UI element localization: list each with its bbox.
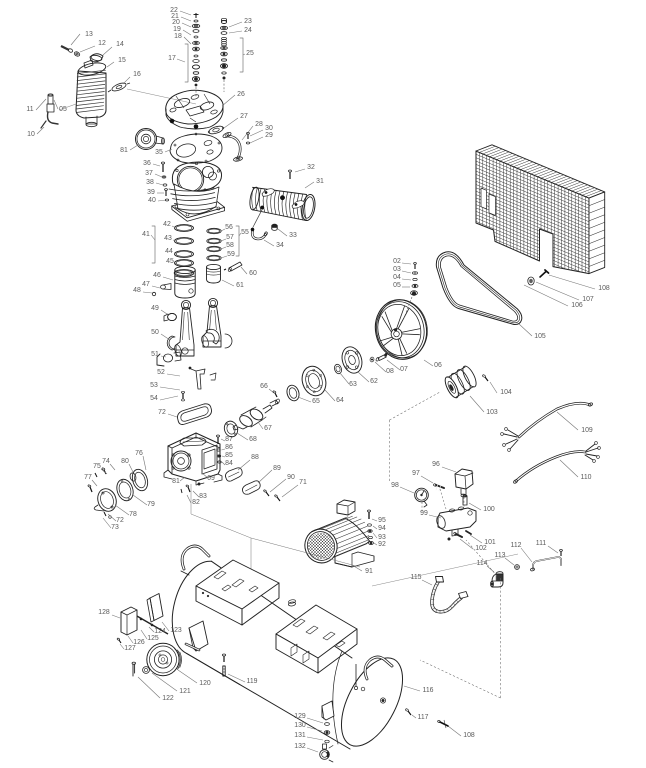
svg-text:132: 132 [294, 743, 306, 750]
svg-text:72: 72 [158, 409, 166, 416]
svg-text:123: 123 [170, 627, 182, 634]
svg-text:97: 97 [412, 470, 420, 477]
svg-text:73: 73 [111, 524, 119, 531]
svg-text:91: 91 [365, 568, 373, 575]
svg-text:127: 127 [124, 645, 136, 652]
svg-text:106: 106 [571, 302, 583, 309]
svg-text:99: 99 [420, 510, 428, 517]
svg-text:86: 86 [225, 444, 233, 451]
svg-text:124: 124 [154, 628, 166, 635]
svg-text:115: 115 [411, 574, 422, 581]
svg-text:119: 119 [247, 678, 258, 685]
svg-text:27: 27 [240, 113, 248, 120]
svg-text:72: 72 [116, 517, 124, 524]
svg-text:53: 53 [150, 382, 158, 389]
svg-text:68: 68 [249, 436, 257, 443]
svg-text:32: 32 [307, 164, 315, 171]
svg-text:55: 55 [241, 229, 249, 236]
svg-text:15: 15 [118, 57, 126, 64]
svg-text:60: 60 [249, 270, 257, 277]
svg-text:80: 80 [121, 458, 129, 465]
svg-text:29: 29 [265, 132, 273, 139]
svg-text:34: 34 [276, 242, 284, 249]
svg-text:81: 81 [120, 147, 128, 154]
svg-text:52: 52 [157, 369, 165, 376]
svg-text:71: 71 [299, 479, 307, 486]
svg-text:67: 67 [264, 425, 272, 432]
svg-text:56: 56 [225, 224, 233, 231]
svg-text:51: 51 [151, 351, 159, 358]
svg-text:31: 31 [316, 178, 324, 185]
svg-text:103: 103 [486, 409, 498, 416]
svg-text:24: 24 [244, 27, 252, 34]
svg-text:102: 102 [475, 545, 487, 552]
svg-text:61: 61 [236, 282, 244, 289]
svg-text:105: 105 [534, 333, 546, 340]
svg-text:16: 16 [133, 71, 141, 78]
svg-text:108: 108 [598, 285, 610, 292]
svg-text:89: 89 [273, 465, 281, 472]
svg-text:111: 111 [536, 540, 547, 547]
svg-text:78: 78 [129, 511, 137, 518]
svg-text:77: 77 [84, 474, 92, 481]
svg-text:81: 81 [172, 478, 180, 485]
svg-text:35: 35 [155, 149, 163, 156]
svg-text:48: 48 [133, 287, 141, 294]
svg-text:25: 25 [246, 50, 254, 57]
svg-text:42: 42 [163, 221, 171, 228]
svg-text:05: 05 [393, 282, 401, 289]
svg-text:74: 74 [102, 458, 110, 465]
svg-text:98: 98 [391, 482, 399, 489]
svg-text:75: 75 [93, 463, 101, 470]
svg-text:104: 104 [500, 389, 512, 396]
svg-text:131: 131 [294, 732, 306, 739]
svg-text:30: 30 [265, 125, 273, 132]
svg-text:03: 03 [393, 266, 401, 273]
svg-text:36: 36 [143, 160, 151, 167]
svg-text:10: 10 [27, 131, 35, 138]
svg-text:08: 08 [386, 368, 394, 375]
svg-text:59: 59 [227, 251, 235, 258]
svg-text:109: 109 [581, 427, 593, 434]
svg-text:20: 20 [172, 19, 180, 26]
svg-text:23: 23 [244, 18, 252, 25]
svg-text:112: 112 [511, 542, 522, 549]
svg-text:117: 117 [418, 714, 429, 721]
svg-text:90: 90 [287, 474, 295, 481]
svg-text:41: 41 [142, 231, 150, 238]
svg-text:94: 94 [378, 525, 386, 532]
svg-text:76: 76 [135, 450, 143, 457]
svg-text:69: 69 [207, 475, 215, 482]
svg-text:110: 110 [581, 474, 592, 481]
svg-text:62: 62 [370, 378, 378, 385]
svg-text:116: 116 [423, 687, 434, 694]
svg-text:04: 04 [393, 274, 401, 281]
svg-text:107: 107 [582, 296, 594, 303]
svg-text:63: 63 [349, 381, 357, 388]
svg-text:57: 57 [226, 234, 234, 241]
svg-text:93: 93 [378, 534, 386, 541]
svg-text:88: 88 [251, 454, 259, 461]
svg-text:82: 82 [192, 499, 200, 506]
svg-text:39: 39 [147, 189, 155, 196]
svg-text:26: 26 [237, 91, 245, 98]
svg-text:122: 122 [162, 695, 174, 702]
svg-text:92: 92 [378, 541, 386, 548]
svg-text:05: 05 [59, 106, 67, 113]
svg-text:28: 28 [255, 121, 263, 128]
svg-text:65: 65 [312, 398, 320, 405]
svg-text:50: 50 [151, 329, 159, 336]
svg-text:66: 66 [260, 383, 268, 390]
svg-text:130: 130 [294, 722, 306, 729]
svg-text:79: 79 [147, 501, 155, 508]
svg-text:19: 19 [173, 26, 181, 33]
svg-text:85: 85 [225, 452, 233, 459]
svg-text:83: 83 [199, 493, 207, 500]
svg-text:129: 129 [294, 713, 306, 720]
svg-text:49: 49 [151, 305, 159, 312]
svg-text:54: 54 [150, 395, 158, 402]
svg-text:18: 18 [174, 33, 182, 40]
svg-text:84: 84 [225, 460, 233, 467]
svg-text:64: 64 [336, 397, 344, 404]
svg-text:100: 100 [483, 506, 495, 513]
svg-text:96: 96 [432, 461, 440, 468]
svg-text:58: 58 [226, 242, 234, 249]
svg-text:02: 02 [393, 258, 401, 265]
svg-text:120: 120 [199, 680, 211, 687]
svg-text:125: 125 [147, 635, 159, 642]
svg-text:37: 37 [145, 170, 153, 177]
svg-text:128: 128 [98, 609, 110, 616]
svg-text:11: 11 [26, 106, 33, 113]
svg-text:07: 07 [400, 366, 408, 373]
svg-text:17: 17 [168, 55, 176, 62]
svg-text:43: 43 [164, 235, 172, 242]
svg-text:33: 33 [289, 232, 297, 239]
svg-text:46: 46 [153, 272, 161, 279]
svg-text:40: 40 [148, 197, 156, 204]
svg-text:14: 14 [116, 41, 124, 48]
svg-text:12: 12 [98, 40, 106, 47]
svg-text:121: 121 [179, 688, 191, 695]
svg-text:44: 44 [165, 248, 173, 255]
svg-text:45: 45 [166, 258, 174, 265]
svg-text:95: 95 [378, 517, 386, 524]
svg-text:06: 06 [434, 362, 442, 369]
svg-text:108: 108 [463, 732, 475, 739]
svg-text:38: 38 [146, 179, 154, 186]
svg-text:47: 47 [142, 281, 150, 288]
svg-text:13: 13 [85, 31, 93, 38]
